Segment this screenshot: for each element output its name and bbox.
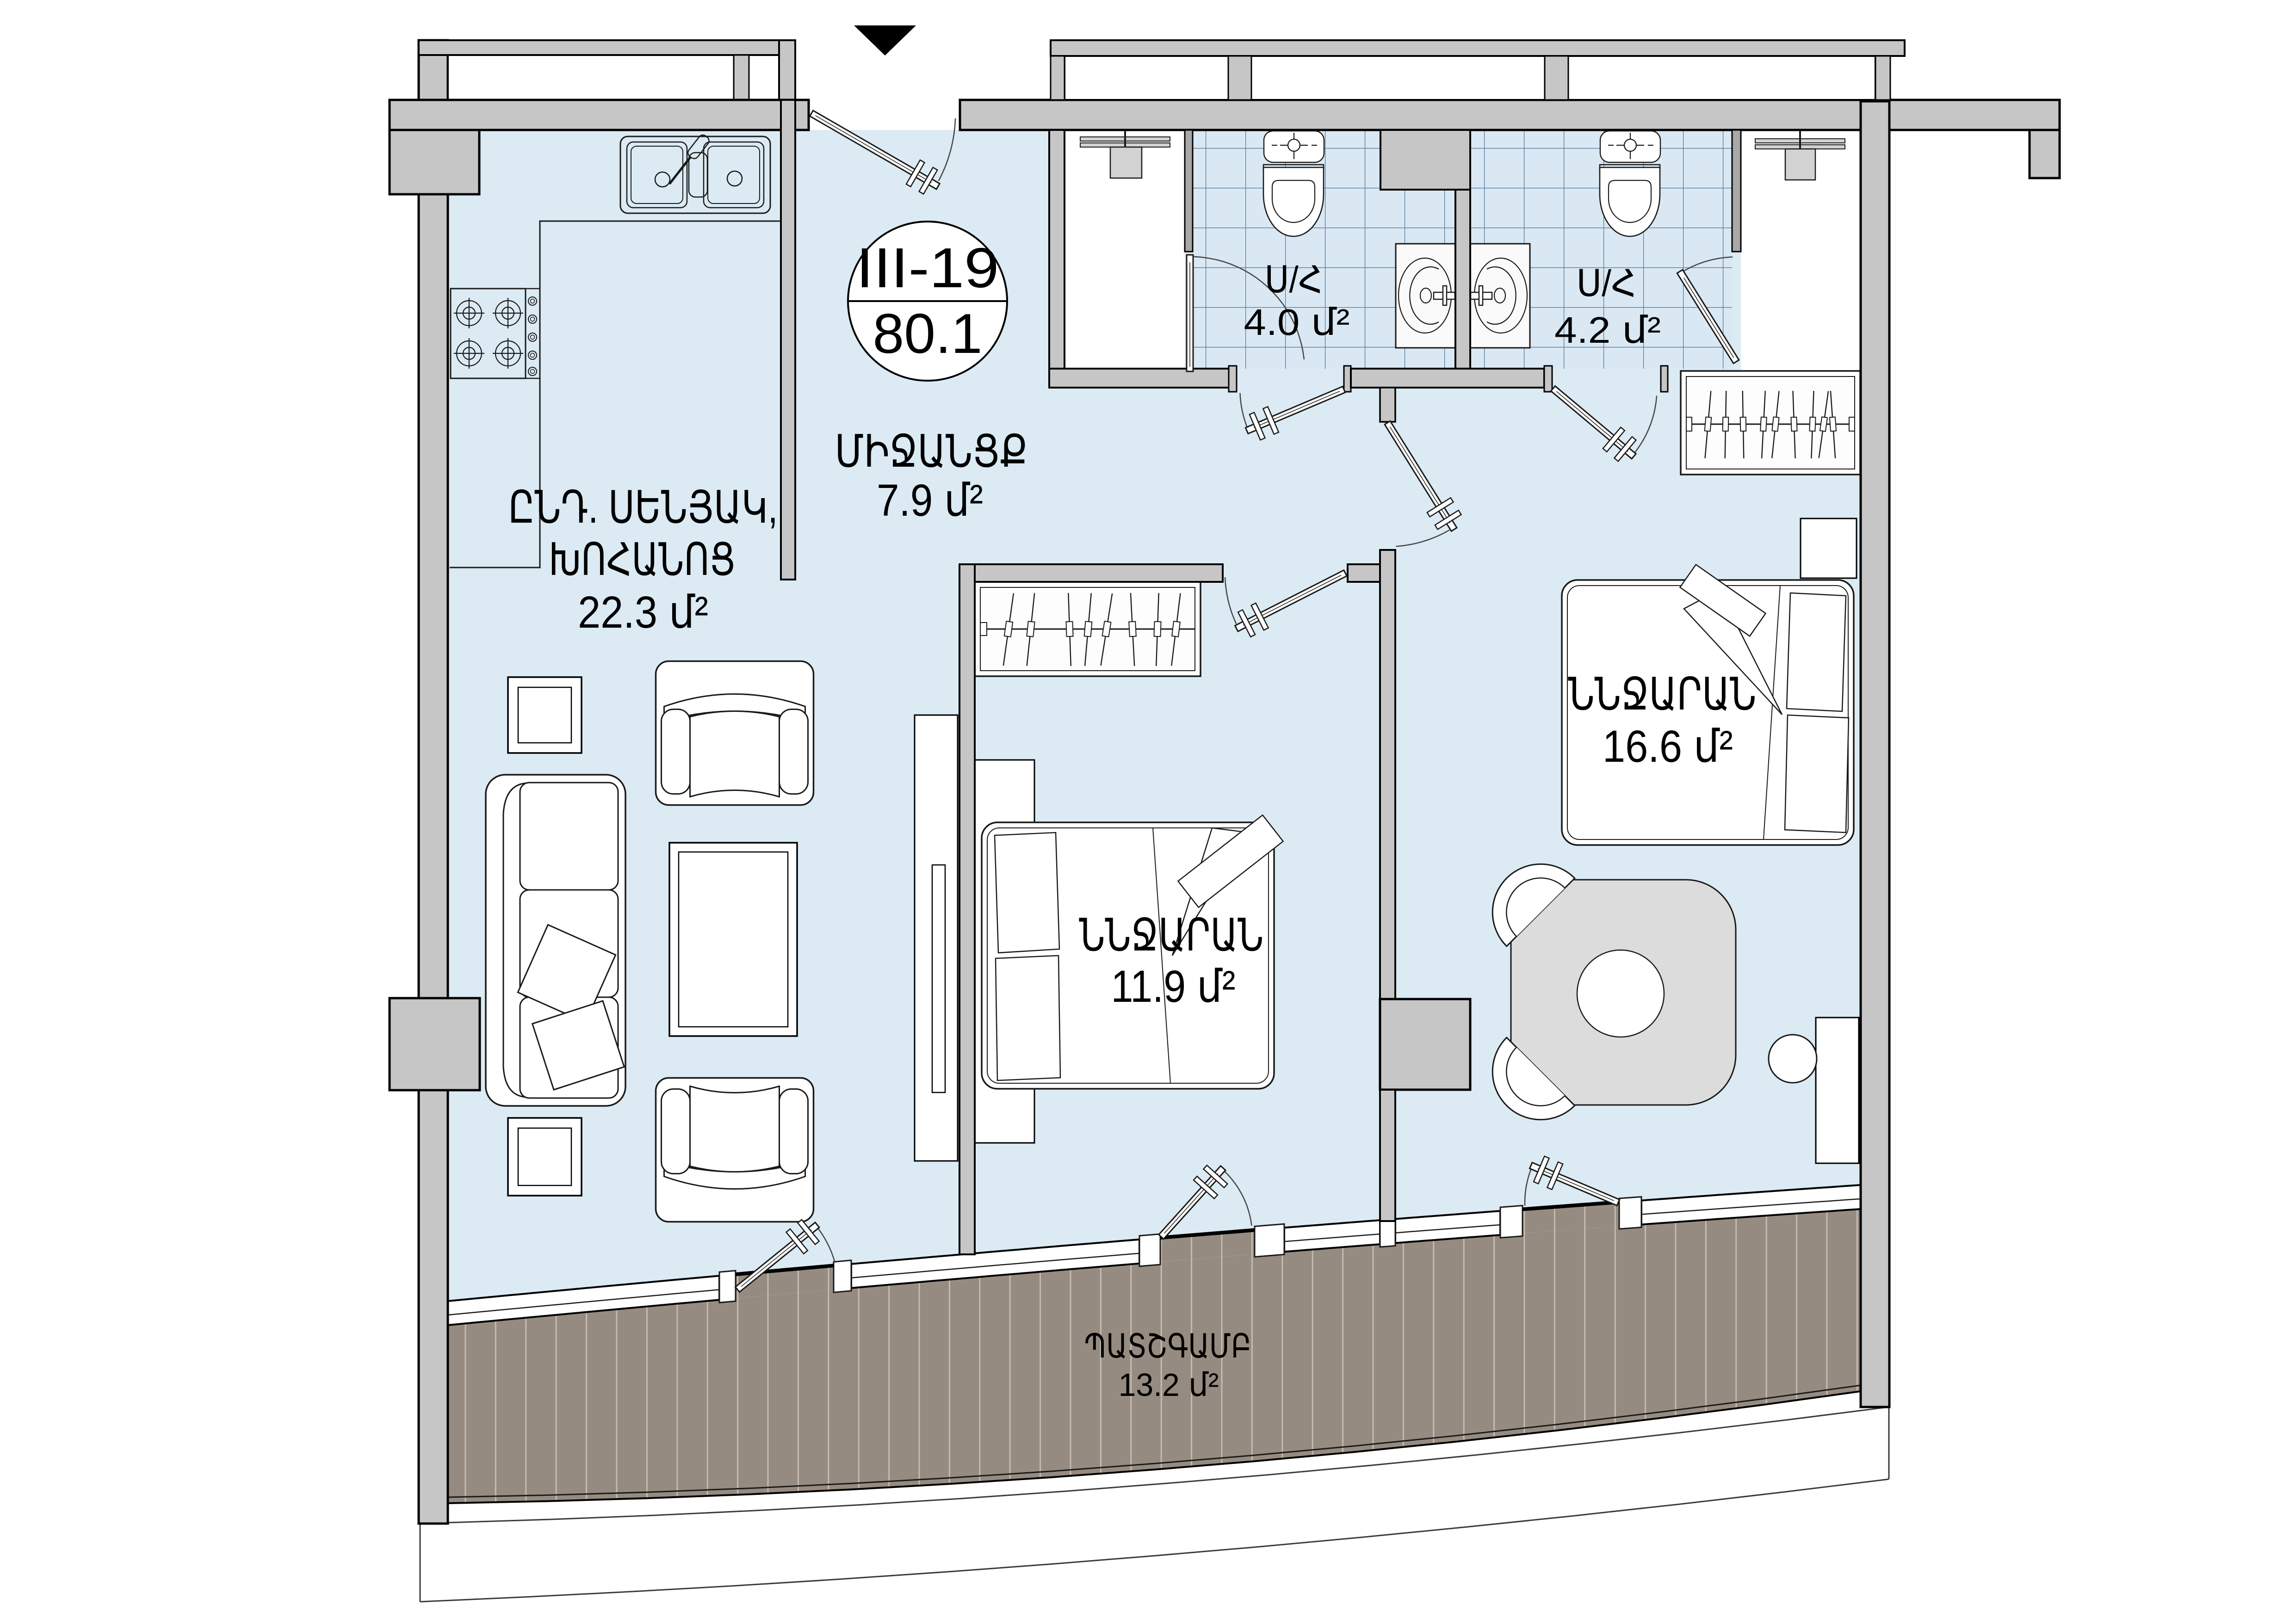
svg-text:III-19: III-19 (856, 236, 999, 299)
svg-text:4.0 մ²: 4.0 մ² (1244, 302, 1350, 343)
svg-text:80.1: 80.1 (873, 302, 983, 365)
svg-text:ԽՈՀԱՆՈՑ: ԽՈՀԱՆՈՑ (549, 534, 736, 585)
svg-text:22.3 մ²: 22.3 մ² (578, 587, 708, 637)
svg-text:7.9 մ²: 7.9 մ² (877, 475, 983, 525)
svg-text:16.6 մ²: 16.6 մ² (1603, 721, 1733, 771)
svg-text:ՆՆՋԱՐԱՆ: ՆՆՋԱՐԱՆ (1079, 910, 1264, 960)
svg-text:13.2 մ²: 13.2 մ² (1119, 1367, 1219, 1403)
svg-text:ՄԻՋԱՆՑՔ: ՄԻՋԱՆՑՔ (835, 426, 1028, 476)
svg-text:ՆՆՋԱՐԱՆ: ՆՆՋԱՐԱՆ (1568, 669, 1757, 719)
svg-text:11.9 մ²: 11.9 մ² (1111, 961, 1236, 1012)
svg-text:Ս/Հ: Ս/Հ (1577, 263, 1636, 304)
svg-text:ԸՆԴ. ՍԵՆՅԱԿ,: ԸՆԴ. ՍԵՆՅԱԿ, (508, 482, 778, 532)
svg-text:ՊԱՏՇԳԱՄԲ: ՊԱՏՇԳԱՄԲ (1084, 1328, 1251, 1365)
svg-text:4.2 մ²: 4.2 մ² (1554, 309, 1661, 351)
svg-text:Ս/Հ: Ս/Հ (1265, 259, 1323, 300)
